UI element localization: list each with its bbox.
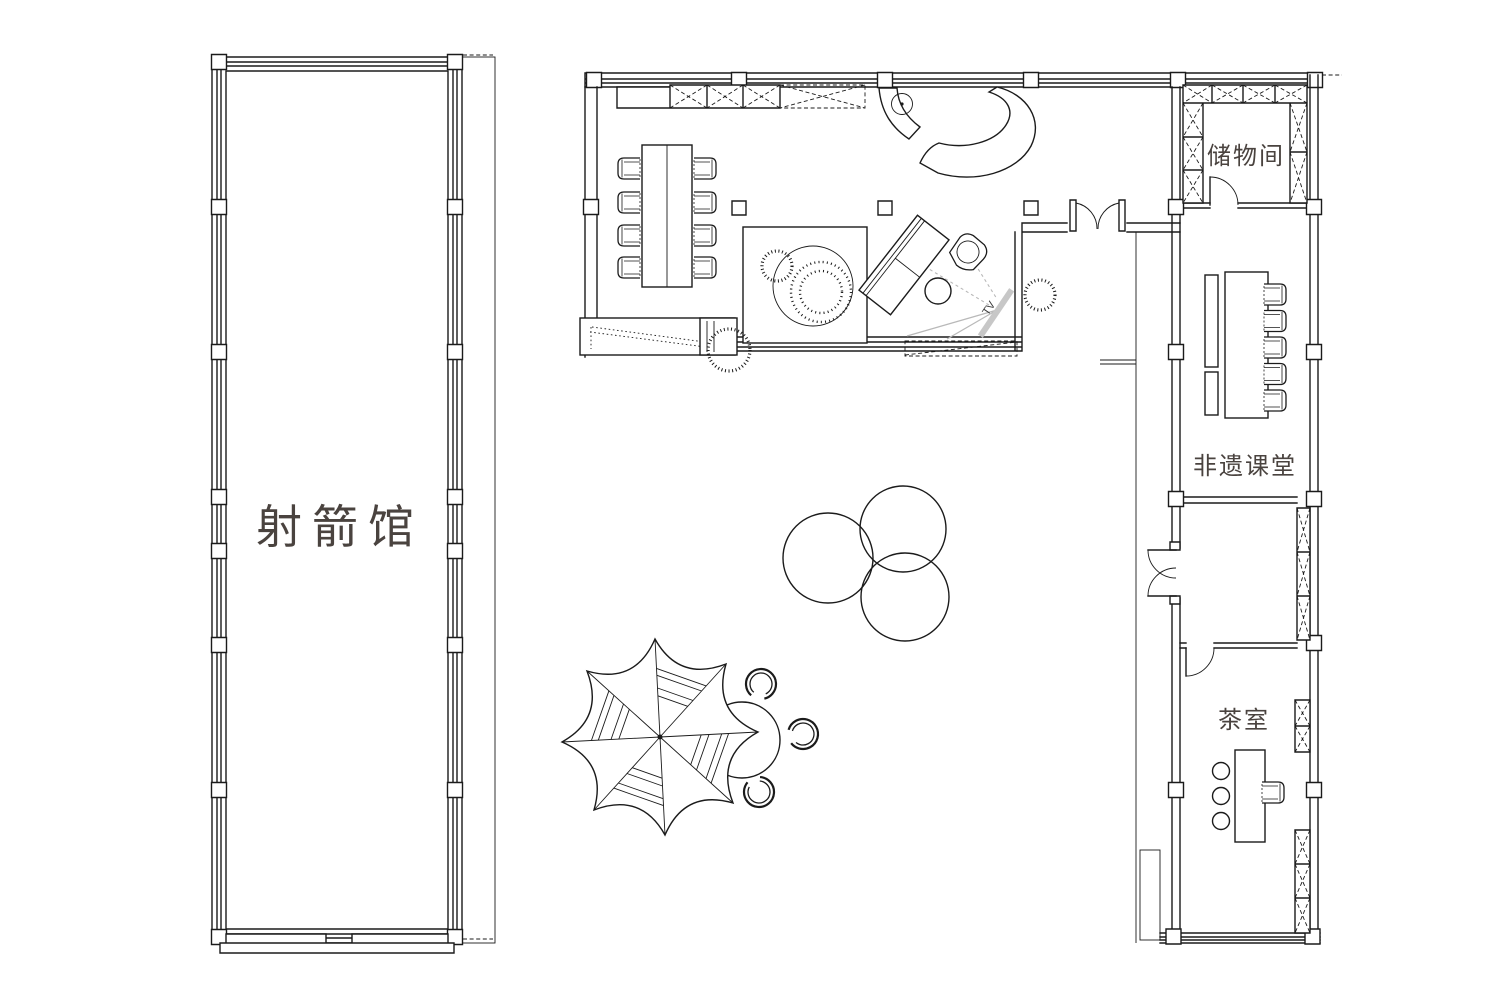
- stool-center-dot: [900, 102, 903, 105]
- heritage-classroom: 非遗课堂: [1193, 272, 1297, 480]
- chair[interactable]: [618, 257, 640, 278]
- bench-end-table: [700, 318, 737, 355]
- left-wall-joint: [584, 200, 599, 215]
- dashed-bench-band: [905, 341, 1017, 356]
- classroom-bench-long: [1205, 275, 1218, 367]
- parasol: [562, 639, 758, 835]
- outdoor-chair[interactable]: [740, 663, 782, 705]
- chair[interactable]: [618, 225, 640, 246]
- tree: [860, 486, 946, 572]
- main-hall-left-wall: [585, 87, 597, 357]
- classroom-table: [1225, 272, 1268, 418]
- floor-plan-canvas: 射箭馆: [0, 0, 1500, 1004]
- tea-storage-frames: [1295, 700, 1310, 933]
- middle-double-door[interactable]: [1148, 542, 1180, 604]
- tea-stool[interactable]: [1213, 788, 1230, 805]
- tea-room: 茶室: [1213, 700, 1311, 933]
- wall-cabinets: [617, 85, 865, 108]
- tea-room-label: 茶室: [1218, 707, 1270, 734]
- armchair-shell: [946, 229, 992, 275]
- storage-room: 储物间: [1183, 85, 1307, 205]
- chair[interactable]: [1264, 311, 1286, 332]
- lounge-shrub: [1025, 280, 1055, 310]
- chair[interactable]: [694, 158, 716, 179]
- walkway-eave-line: [1100, 232, 1136, 943]
- chair[interactable]: [694, 225, 716, 246]
- heritage-classroom-label: 非遗课堂: [1193, 453, 1297, 480]
- outdoor-chair[interactable]: [743, 776, 775, 808]
- archery-hall-side-strip: [462, 57, 495, 943]
- chair[interactable]: [694, 192, 716, 213]
- conference-table-group: [618, 145, 716, 287]
- chair[interactable]: [694, 257, 716, 278]
- archery-hall-label: 射箭馆: [256, 501, 424, 553]
- chair[interactable]: [1262, 782, 1284, 803]
- middle-room-bottom-wall: [1180, 643, 1297, 648]
- door-swing-arc: [1186, 648, 1214, 676]
- door-swing-arcs: [1076, 203, 1119, 229]
- tree: [861, 553, 949, 641]
- outdoor-chair[interactable]: [784, 715, 821, 752]
- cabinet-dashed-unit: [780, 85, 865, 108]
- chair[interactable]: [1264, 337, 1286, 358]
- parasol-center-dot: [658, 735, 663, 740]
- coffee-table: [925, 278, 951, 304]
- archery-hall-walls: [212, 57, 462, 943]
- door-jambs: [1170, 542, 1180, 604]
- chair[interactable]: [618, 192, 640, 213]
- chair[interactable]: [1264, 364, 1286, 385]
- chair[interactable]: [1264, 390, 1286, 411]
- floor-plan-page: 射箭馆: [0, 0, 1500, 1004]
- lounge-group: TV: [859, 215, 1055, 339]
- archery-hall-entry-steps: [220, 934, 454, 953]
- tea-stool[interactable]: [1213, 813, 1230, 830]
- east-wing-building: 储物间 非遗课堂: [1100, 75, 1322, 944]
- curved-counter: [879, 88, 920, 139]
- chair[interactable]: [1264, 284, 1286, 305]
- door-swing-arc: [1210, 177, 1238, 205]
- interior-columns: [732, 201, 1038, 215]
- main-double-door[interactable]: [1070, 200, 1125, 231]
- tree-circles: [783, 486, 949, 641]
- tea-room-door[interactable]: [1186, 648, 1214, 676]
- curved-bench: [920, 87, 1035, 177]
- door-leaves: [1070, 200, 1125, 231]
- door-swing-arcs: [1148, 550, 1176, 596]
- storage-bottom-wall: [1180, 203, 1310, 208]
- courtyard: [562, 486, 949, 835]
- planting-box: [743, 227, 867, 343]
- tea-stool[interactable]: [1213, 763, 1230, 780]
- cabinet-frames: [617, 85, 780, 108]
- walkway-pier: [1140, 850, 1160, 940]
- armchair: [946, 229, 992, 275]
- east-wing-bottom-wall: [1160, 933, 1320, 943]
- storage-room-label: 储物间: [1207, 143, 1285, 170]
- classroom-bottom-wall: [1180, 497, 1297, 503]
- counter-band: [879, 88, 920, 139]
- tea-table: [1235, 750, 1265, 842]
- chair[interactable]: [618, 158, 640, 179]
- door-leaves: [1148, 550, 1176, 596]
- classroom-bench-short: [1205, 372, 1218, 415]
- storage-door[interactable]: [1210, 177, 1238, 205]
- archery-hall-wall-joints: [212, 55, 463, 945]
- archery-hall-dashed-edges: [463, 55, 493, 939]
- archery-hall-building: 射箭馆: [212, 55, 496, 954]
